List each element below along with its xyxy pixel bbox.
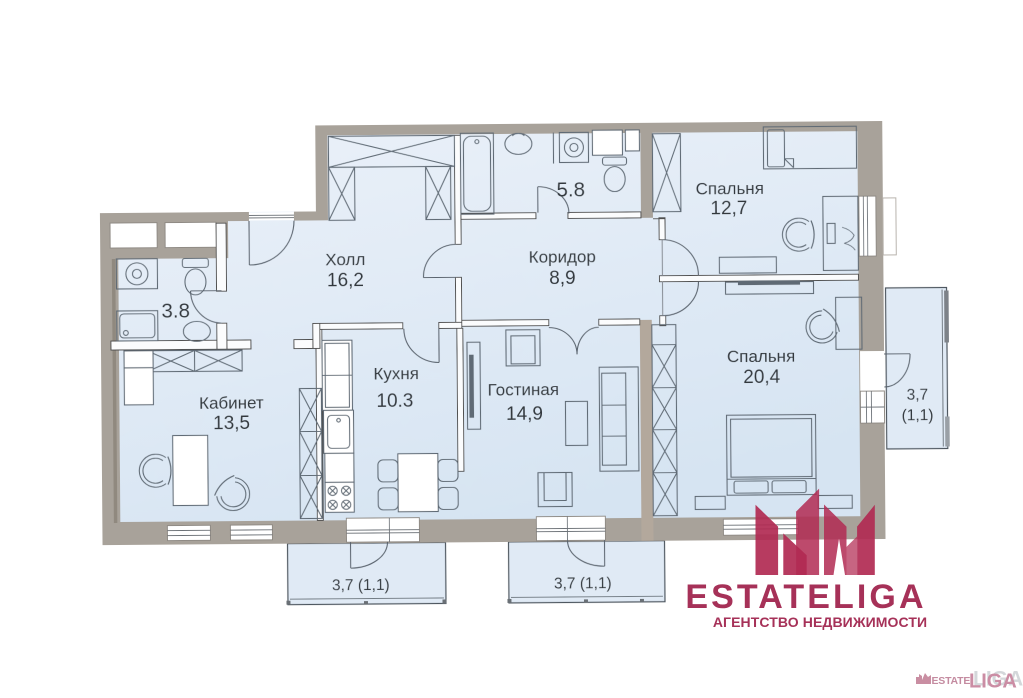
svg-text:12,7: 12,7 bbox=[710, 198, 747, 219]
svg-text:Спальня: Спальня bbox=[696, 179, 764, 199]
svg-text:16,2: 16,2 bbox=[327, 270, 364, 291]
svg-text:3,7 (1,1): 3,7 (1,1) bbox=[554, 575, 612, 592]
svg-text:3,7 (1,1): 3,7 (1,1) bbox=[332, 577, 390, 594]
svg-text:Кухня: Кухня bbox=[373, 364, 419, 383]
svg-text:5.8: 5.8 bbox=[556, 178, 585, 201]
svg-text:Холл: Холл bbox=[325, 250, 365, 269]
svg-text:14,9: 14,9 bbox=[506, 404, 543, 425]
svg-text:Кабинет: Кабинет bbox=[199, 393, 264, 413]
svg-text:Спальня: Спальня bbox=[727, 347, 795, 367]
svg-text:(1,1): (1,1) bbox=[902, 407, 934, 424]
svg-text:LIGA: LIGA bbox=[969, 671, 1017, 693]
svg-text:10.3: 10.3 bbox=[376, 391, 413, 412]
svg-text:Коридор: Коридор bbox=[529, 247, 596, 267]
svg-text:3,7: 3,7 bbox=[907, 387, 929, 404]
svg-text:АГЕНТСТВО НЕДВИЖИМОСТИ: АГЕНТСТВО НЕДВИЖИМОСТИ bbox=[713, 614, 927, 630]
svg-text:ESTATELIGA: ESTATELIGA bbox=[685, 578, 926, 616]
svg-text:3.8: 3.8 bbox=[161, 299, 190, 322]
svg-text:Гостиная: Гостиная bbox=[488, 380, 560, 400]
svg-text:20,4: 20,4 bbox=[743, 367, 781, 388]
svg-text:8,9: 8,9 bbox=[549, 268, 576, 289]
svg-text:13,5: 13,5 bbox=[213, 413, 250, 434]
svg-text:ESTATE: ESTATE bbox=[932, 675, 971, 687]
